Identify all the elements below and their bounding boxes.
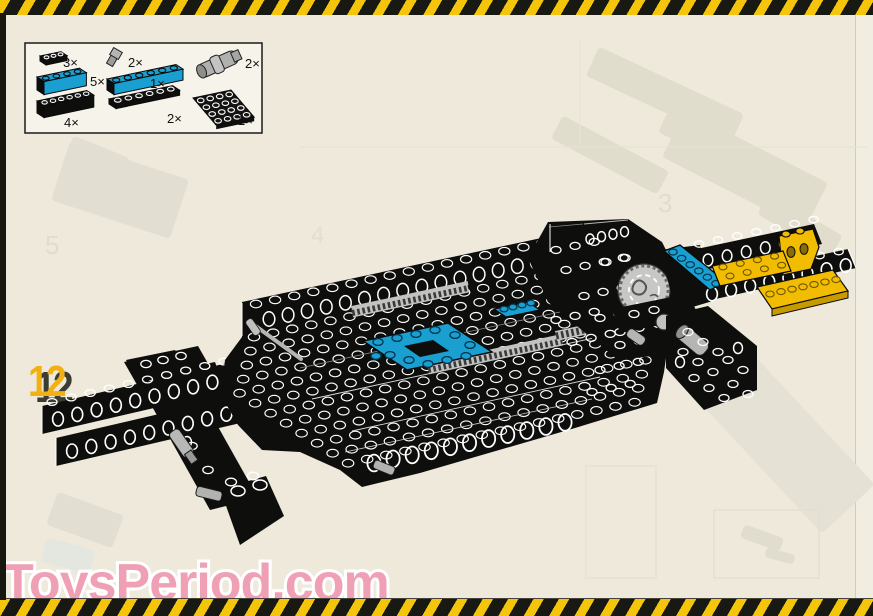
svg-text:12: 12 xyxy=(28,356,65,406)
svg-text:2×: 2× xyxy=(128,55,143,70)
svg-text:3: 3 xyxy=(658,188,672,218)
svg-text:2×: 2× xyxy=(167,111,182,126)
svg-text:4×: 4× xyxy=(64,115,79,130)
svg-text:4: 4 xyxy=(311,222,324,249)
svg-text:2×: 2× xyxy=(238,113,253,128)
svg-text:2×: 2× xyxy=(245,56,260,71)
svg-text:5×: 5× xyxy=(90,74,105,89)
svg-text:3×: 3× xyxy=(63,55,78,70)
svg-text:5: 5 xyxy=(45,230,59,260)
